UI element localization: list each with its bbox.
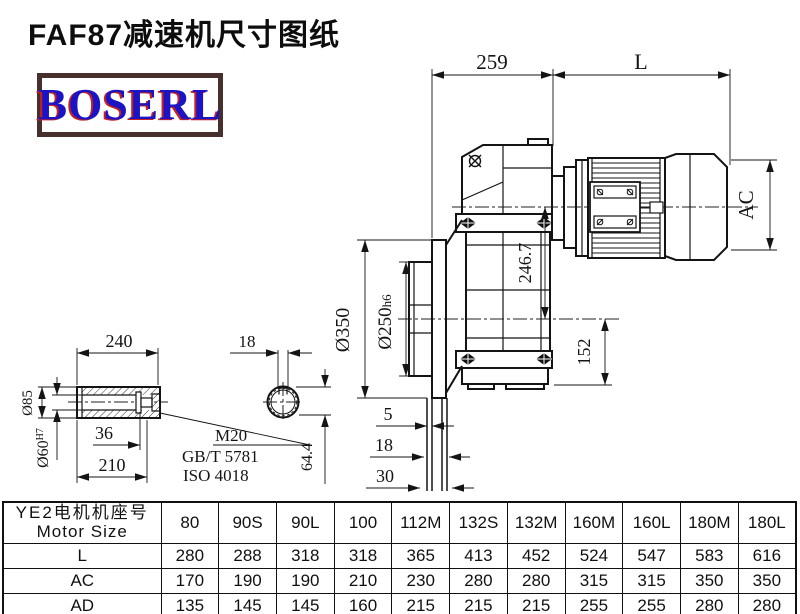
table-cell: 616 — [738, 544, 796, 569]
housing-bolt-icons — [460, 217, 552, 365]
table-cell: 280 — [738, 594, 796, 614]
table-cell: 170 — [161, 569, 219, 594]
row-label: AD — [3, 594, 161, 614]
dim-18-tube: 18 — [375, 435, 393, 455]
table-cell: 413 — [450, 544, 508, 569]
dimension-labels: 259 L AC 246.7 Ø350 Ø250h6 152 5 18 30 6… — [20, 49, 758, 486]
dim-30: 30 — [376, 466, 394, 486]
column-header: 160M — [565, 502, 623, 544]
dim-60H7: Ø60H7 — [35, 428, 52, 468]
table-row-AC: AC 170 190 190 210 230 280 280 315 315 3… — [3, 569, 796, 594]
motor-size-table: YE2电机机座号 Motor Size 80 90S 90L 100 112M … — [2, 501, 797, 614]
dim-5: 5 — [384, 404, 393, 424]
table-cell: 524 — [565, 544, 623, 569]
dim-36: 36 — [95, 423, 113, 443]
column-header: 90L — [276, 502, 334, 544]
column-header: 180M — [680, 502, 738, 544]
table-cell: 350 — [738, 569, 796, 594]
table-cell: 255 — [565, 594, 623, 614]
dim-210: 210 — [99, 455, 126, 475]
dim-246-7: 246.7 — [515, 243, 535, 284]
table-cell: 230 — [392, 569, 450, 594]
motor-size-header: YE2电机机座号 Motor Size — [3, 502, 161, 544]
table-cell: 280 — [161, 544, 219, 569]
table-cell: 215 — [507, 594, 565, 614]
drawing-sheet: FAF87减速机尺寸图纸 BOSERL — [0, 0, 800, 614]
table-cell: 583 — [680, 544, 738, 569]
table-cell: 280 — [450, 569, 508, 594]
table-cell: 210 — [334, 569, 392, 594]
table-cell: 145 — [219, 594, 277, 614]
label-m20: M20 — [215, 426, 247, 445]
table-cell: 190 — [219, 569, 277, 594]
table-header-row: YE2电机机座号 Motor Size 80 90S 90L 100 112M … — [3, 502, 796, 544]
dim-AC: AC — [734, 190, 758, 219]
table-cell: 288 — [219, 544, 277, 569]
table-cell: 547 — [623, 544, 681, 569]
label-iso-4018: ISO 4018 — [183, 466, 249, 485]
dim-64-4: 64.4 — [299, 443, 316, 471]
table-cell: 350 — [680, 569, 738, 594]
table-cell: 215 — [450, 594, 508, 614]
dim-L: L — [634, 49, 647, 74]
table-cell: 318 — [276, 544, 334, 569]
column-header: 80 — [161, 502, 219, 544]
gear-housing — [456, 139, 552, 389]
table-cell: 315 — [623, 569, 681, 594]
dim-18-key: 18 — [239, 332, 256, 351]
dim-350: Ø350 — [332, 308, 354, 352]
dimension-lines — [38, 69, 777, 488]
output-flange — [409, 220, 462, 491]
technical-drawing: 259 L AC 246.7 Ø350 Ø250h6 152 5 18 30 6… — [0, 0, 800, 500]
terminal-box — [590, 182, 640, 232]
table-cell: 315 — [565, 569, 623, 594]
header-cn: YE2电机机座号 — [4, 504, 161, 523]
table-cell: 318 — [334, 544, 392, 569]
table-row-L: L 280 288 318 318 365 413 452 524 547 58… — [3, 544, 796, 569]
table-cell: 365 — [392, 544, 450, 569]
column-header: 160L — [623, 502, 681, 544]
column-header: 180L — [738, 502, 796, 544]
dim-152: 152 — [574, 339, 594, 366]
header-en: Motor Size — [4, 523, 161, 542]
table-cell: 215 — [392, 594, 450, 614]
column-header: 90S — [219, 502, 277, 544]
column-header: 132S — [450, 502, 508, 544]
dim-259: 259 — [476, 50, 508, 74]
dim-240: 240 — [106, 331, 133, 351]
row-label: L — [3, 544, 161, 569]
table-cell: 135 — [161, 594, 219, 614]
column-header: 112M — [392, 502, 450, 544]
table-cell: 145 — [276, 594, 334, 614]
table-cell: 280 — [507, 569, 565, 594]
lifting-eye-icon — [469, 155, 481, 167]
dim-85: Ø85 — [20, 390, 36, 416]
column-header: 132M — [507, 502, 565, 544]
table-cell: 160 — [334, 594, 392, 614]
table-cell: 190 — [276, 569, 334, 594]
table-row-AD: AD 135 145 145 160 215 215 215 255 255 2… — [3, 594, 796, 614]
table-cell: 255 — [623, 594, 681, 614]
table-cell: 452 — [507, 544, 565, 569]
dim-250h6: Ø250h6 — [375, 294, 396, 350]
table-cell: 280 — [680, 594, 738, 614]
column-header: 100 — [334, 502, 392, 544]
label-gbt-5781: GB/T 5781 — [182, 447, 259, 466]
row-label: AC — [3, 569, 161, 594]
centerlines — [68, 207, 758, 422]
